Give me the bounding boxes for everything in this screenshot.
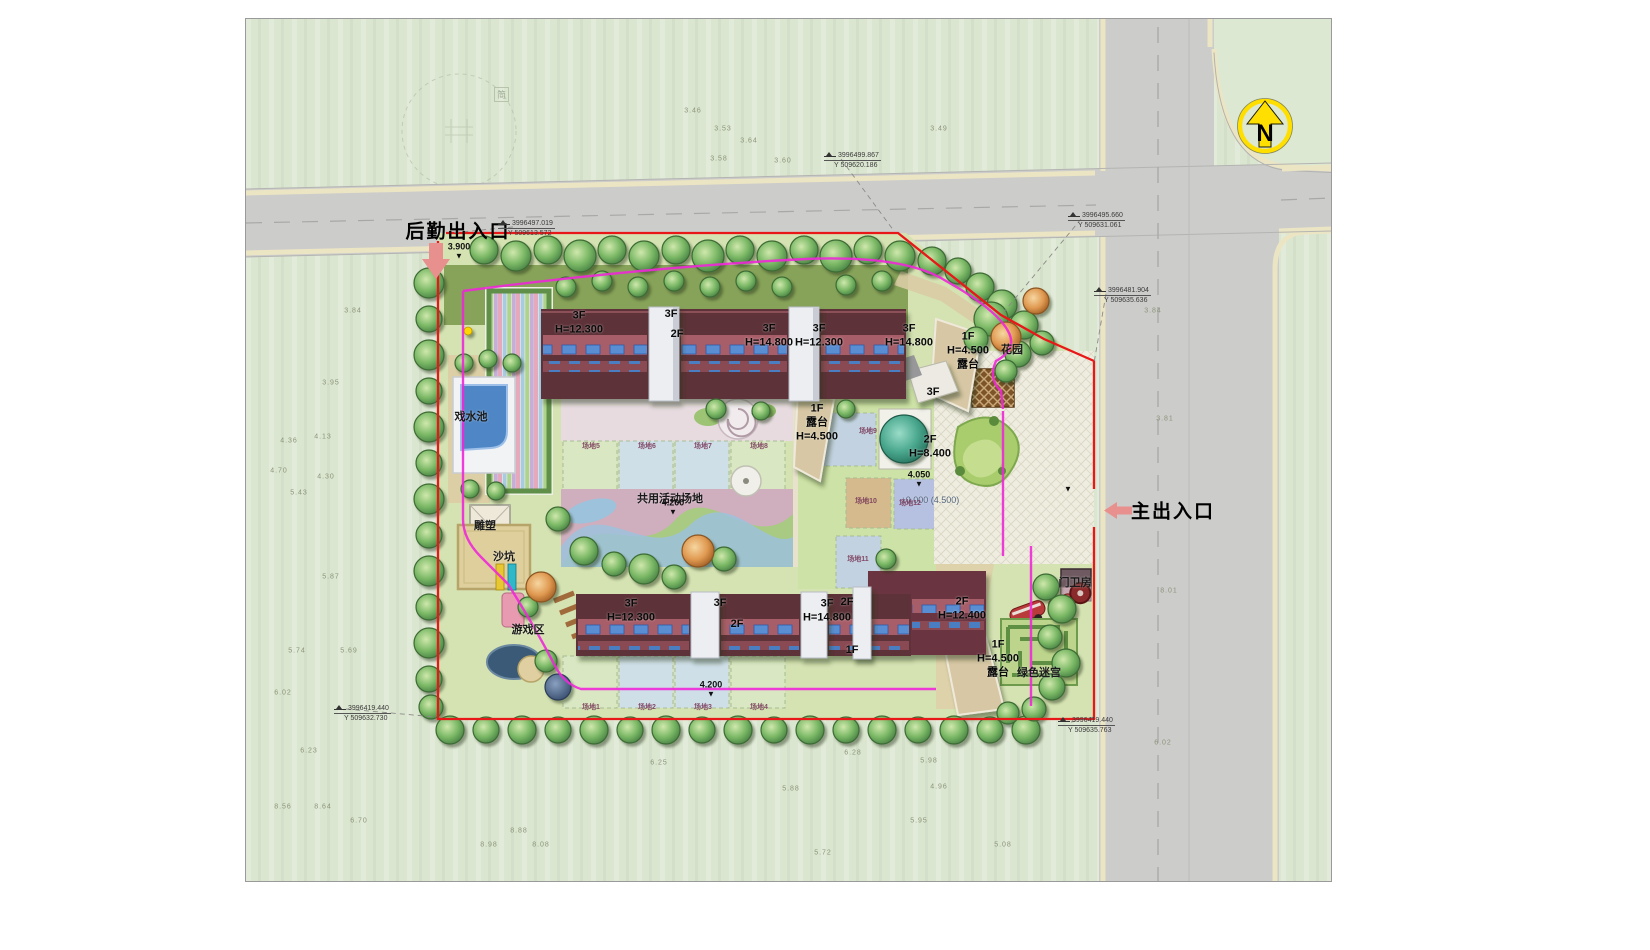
draft-circle [402,74,516,188]
site-plan-sheet: 简 后勤出入口 主出入口 N 3F H=12.3003F2F3F H=14.80… [245,18,1332,882]
site-plan-graphics [246,19,1331,881]
screenshot-canvas: 简 后勤出入口 主出入口 N 3F H=12.3003F2F3F H=14.80… [0,0,1650,950]
